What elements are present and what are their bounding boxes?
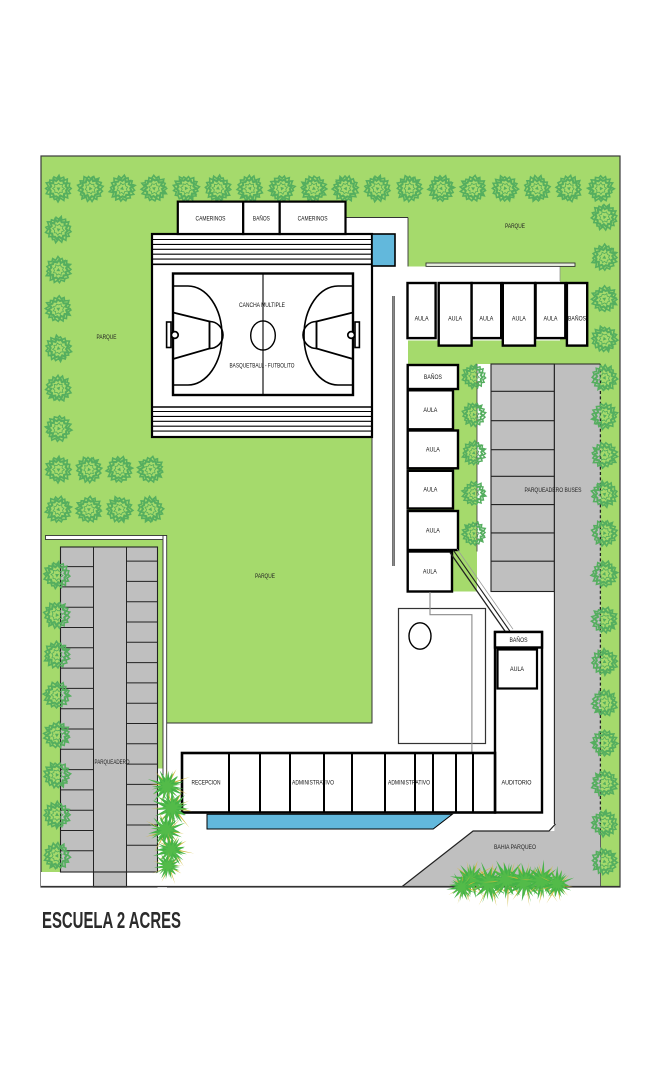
svg-text:BAÑOS: BAÑOS bbox=[568, 316, 586, 323]
svg-text:AULA: AULA bbox=[423, 487, 438, 494]
svg-text:BASQUETBALL - FUTBOLITO: BASQUETBALL - FUTBOLITO bbox=[230, 363, 295, 370]
svg-text:BAÑOS: BAÑOS bbox=[510, 637, 528, 644]
svg-text:PARQUEADERO BUSES: PARQUEADERO BUSES bbox=[525, 487, 582, 494]
svg-text:AULA: AULA bbox=[415, 316, 430, 323]
svg-text:AULA: AULA bbox=[544, 316, 559, 323]
svg-text:AULA: AULA bbox=[426, 528, 441, 535]
svg-text:BAÑOS: BAÑOS bbox=[424, 374, 442, 381]
svg-text:PARQUEADERO: PARQUEADERO bbox=[95, 759, 130, 766]
svg-text:PARQUE: PARQUE bbox=[505, 223, 525, 230]
svg-text:PARQUE: PARQUE bbox=[97, 334, 117, 341]
svg-text:CAMERINOS: CAMERINOS bbox=[196, 216, 226, 223]
svg-text:AULA: AULA bbox=[426, 446, 441, 453]
svg-text:AUDITORIO: AUDITORIO bbox=[502, 780, 532, 787]
svg-text:AULA: AULA bbox=[512, 316, 527, 323]
svg-text:CAMERINOS: CAMERINOS bbox=[298, 216, 328, 223]
svg-text:AULA: AULA bbox=[423, 569, 438, 576]
svg-text:RECEPCION: RECEPCION bbox=[192, 780, 221, 787]
svg-text:AULA: AULA bbox=[423, 407, 438, 414]
svg-text:BAÑOS: BAÑOS bbox=[253, 216, 270, 223]
svg-text:AULA: AULA bbox=[510, 666, 525, 673]
svg-text:ADMINISTRATIVO: ADMINISTRATIVO bbox=[292, 780, 334, 787]
svg-text:BAHIA PARQUEO: BAHIA PARQUEO bbox=[494, 844, 536, 851]
svg-text:CANCHA MULTIPLE: CANCHA MULTIPLE bbox=[239, 302, 285, 309]
svg-text:PARQUE: PARQUE bbox=[255, 573, 275, 580]
svg-text:AULA: AULA bbox=[479, 316, 494, 323]
svg-text:ADMINISTRATIVO: ADMINISTRATIVO bbox=[388, 780, 430, 787]
svg-text:ESCUELA 2 ACRES: ESCUELA 2 ACRES bbox=[42, 907, 181, 933]
svg-text:AULA: AULA bbox=[448, 316, 463, 323]
